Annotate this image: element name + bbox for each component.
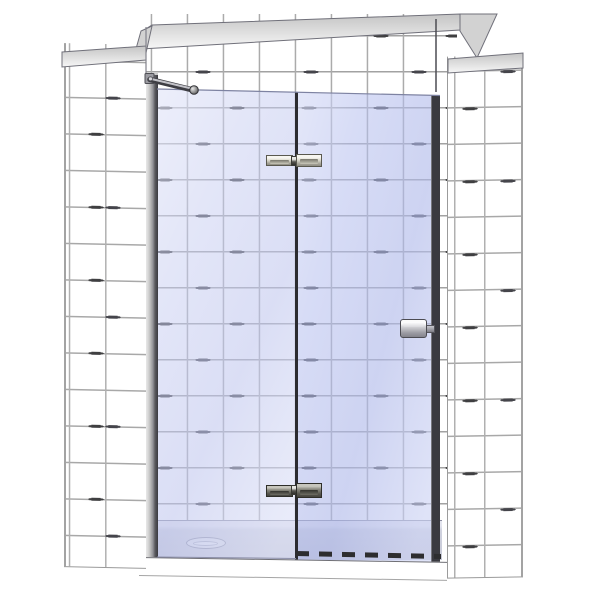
tray-front-apron bbox=[139, 557, 447, 581]
bottom-hinge bbox=[266, 481, 322, 500]
right-tiled-wall bbox=[447, 55, 523, 578]
door-handle-stem bbox=[426, 325, 435, 333]
bottom-hinge-door-plate bbox=[296, 483, 322, 498]
top-hinge bbox=[266, 152, 322, 169]
left-tiled-wall bbox=[64, 43, 146, 569]
top-hinge-door-plate bbox=[296, 154, 322, 167]
right-cap-corner-jog bbox=[460, 14, 497, 58]
shower-door-render bbox=[0, 0, 600, 600]
bottom-hinge-wall-plate bbox=[266, 485, 293, 497]
top-hinge-wall-plate bbox=[266, 155, 293, 166]
door-handle bbox=[400, 319, 427, 338]
